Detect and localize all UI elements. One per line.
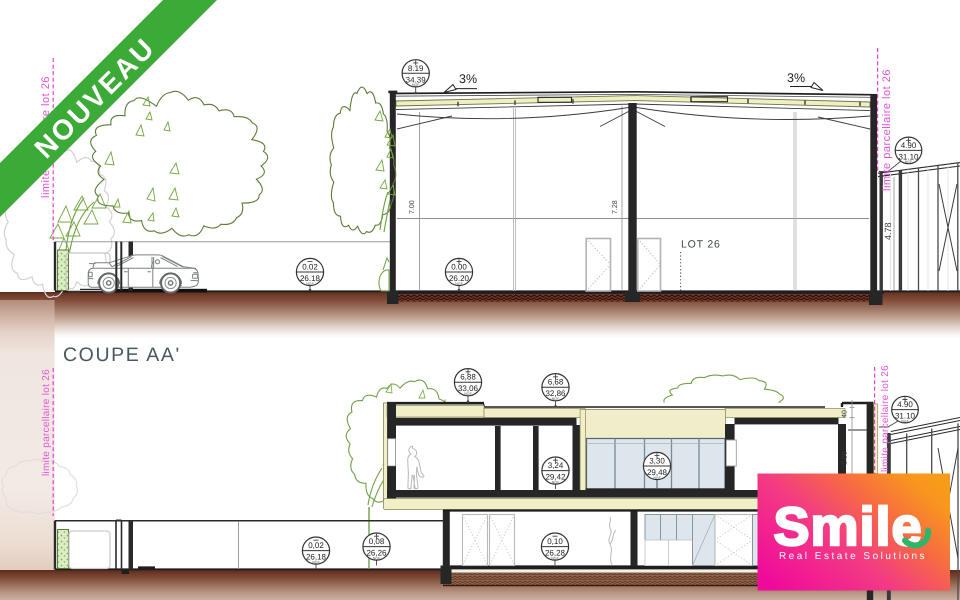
svg-text:6,68: 6,68 [548, 378, 564, 387]
svg-text:4.90: 4.90 [897, 400, 913, 409]
svg-text:NGF: NGF [905, 160, 913, 164]
svg-text:0,10: 0,10 [547, 537, 563, 546]
svg-text:NGF: NGF [552, 480, 560, 484]
svg-text:3,30: 3,30 [649, 457, 665, 466]
svg-text:0.02: 0.02 [302, 263, 318, 272]
svg-text:NGF: NGF [455, 282, 463, 286]
svg-text:4.90: 4.90 [901, 141, 917, 150]
svg-text:Real Estate Solutions: Real Estate Solutions [779, 551, 927, 562]
svg-text:40: 40 [842, 410, 849, 418]
svg-text:NGF: NGF [551, 556, 559, 560]
svg-text:0,02: 0,02 [308, 541, 324, 550]
svg-text:NGF: NGF [312, 560, 320, 564]
svg-text:0.00: 0.00 [451, 263, 467, 272]
svg-text:8.19: 8.19 [408, 64, 424, 73]
svg-text:limite parcellaire lot 26: limite parcellaire lot 26 [41, 369, 52, 476]
svg-text:3,24: 3,24 [548, 461, 564, 470]
svg-text:NGF: NGF [653, 476, 661, 480]
svg-text:3%: 3% [787, 71, 805, 85]
svg-text:NGF: NGF [464, 392, 472, 396]
svg-text:0,08: 0,08 [369, 537, 385, 546]
svg-text:7.28: 7.28 [612, 200, 619, 214]
svg-text:7.00: 7.00 [409, 200, 416, 214]
svg-text:LOT 26: LOT 26 [681, 239, 721, 251]
svg-text:2.50: 2.50 [842, 451, 849, 465]
svg-text:3%: 3% [459, 72, 477, 86]
svg-text:6,88: 6,88 [460, 373, 476, 382]
svg-text:NGF: NGF [412, 83, 420, 87]
svg-text:4.78: 4.78 [883, 222, 893, 240]
svg-text:limite parcellaire lot 26: limite parcellaire lot 26 [880, 365, 891, 472]
svg-text:Smile: Smile [773, 497, 922, 557]
svg-text:NGF: NGF [552, 397, 560, 401]
svg-text:NGF: NGF [373, 556, 381, 560]
svg-text:NGF: NGF [901, 419, 909, 423]
svg-text:NGF: NGF [306, 282, 314, 286]
svg-text:COUPE AA': COUPE AA' [63, 344, 181, 366]
svg-text:limite parcellaire lot 26: limite parcellaire lot 26 [881, 69, 893, 191]
